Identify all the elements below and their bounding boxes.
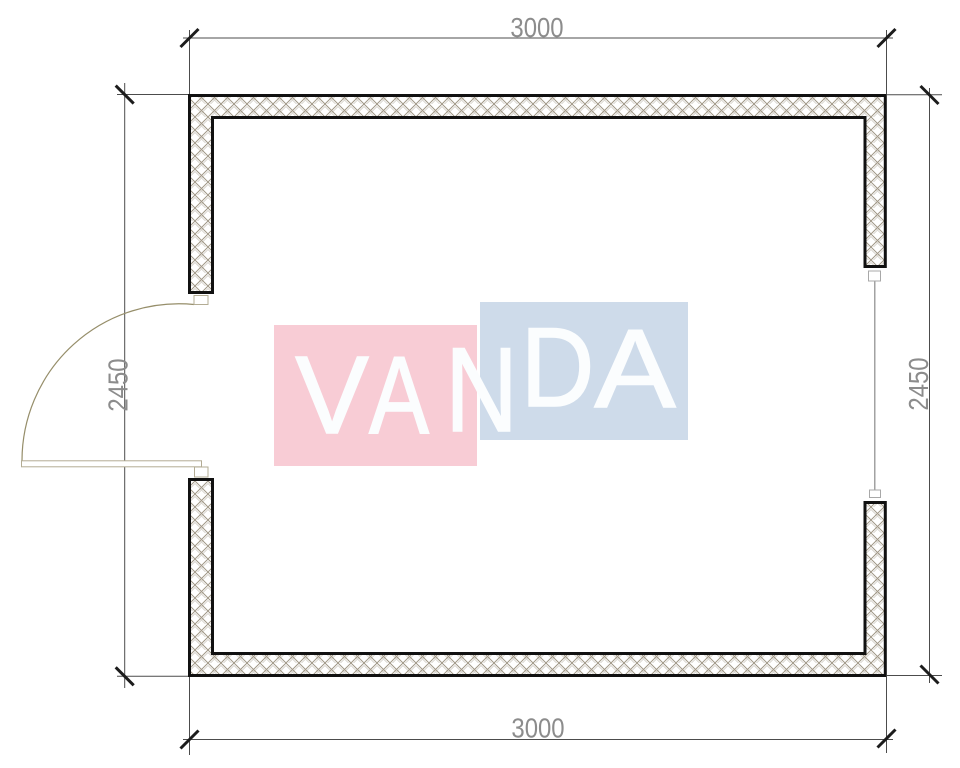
svg-text:N: N <box>445 324 518 457</box>
svg-text:A: A <box>594 307 675 431</box>
svg-text:3000: 3000 <box>510 14 563 44</box>
svg-text:V: V <box>295 334 368 457</box>
svg-text:D: D <box>521 305 595 431</box>
svg-text:3000: 3000 <box>511 714 564 744</box>
svg-text:2450: 2450 <box>104 358 134 411</box>
svg-text:A: A <box>369 334 429 457</box>
svg-text:2450: 2450 <box>905 357 935 410</box>
